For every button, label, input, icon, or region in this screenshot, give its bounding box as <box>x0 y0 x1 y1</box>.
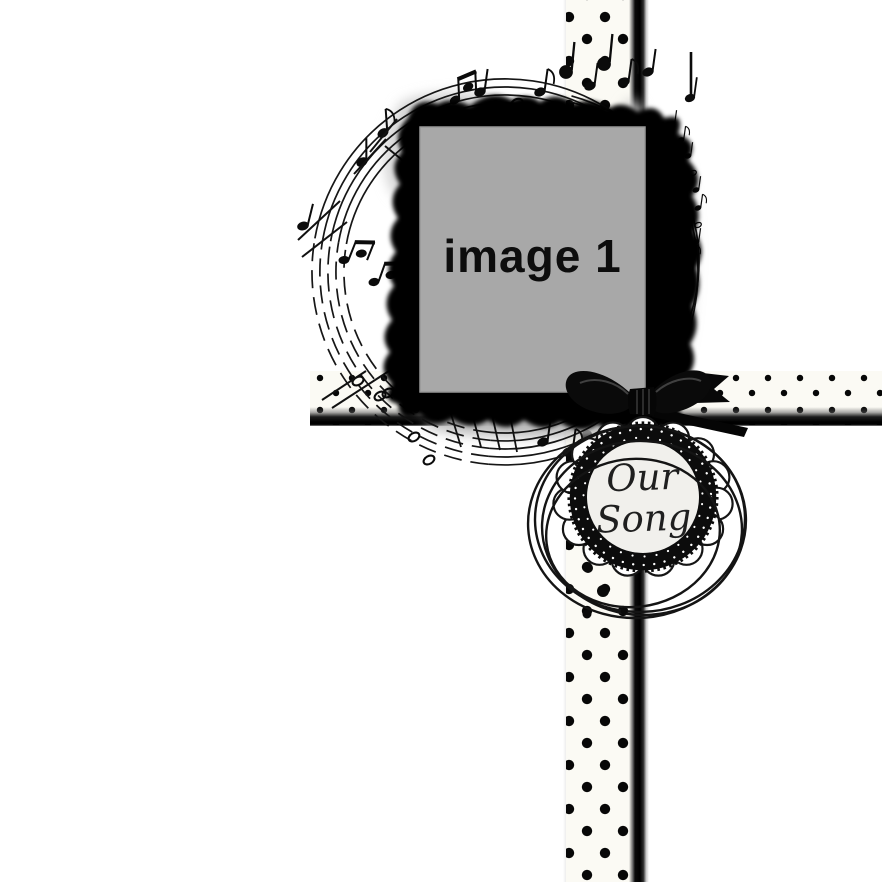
scrapbook-page: image 1 Our Song <box>0 0 882 882</box>
whole-note-icon <box>421 453 436 466</box>
photo-placeholder-label: image 1 <box>420 123 645 388</box>
badge-title-line1: Our <box>606 455 679 499</box>
quarter-note-icon <box>584 63 598 92</box>
quarter-note-icon <box>642 49 656 78</box>
badge-title: Our Song <box>559 438 727 558</box>
eighth-note-icon <box>618 59 639 88</box>
note-icon <box>598 34 613 70</box>
note-icon <box>560 42 575 78</box>
whole-note-icon <box>406 430 421 443</box>
badge-title-line2: Song <box>595 496 692 541</box>
beamed-notes-icon <box>337 234 375 271</box>
